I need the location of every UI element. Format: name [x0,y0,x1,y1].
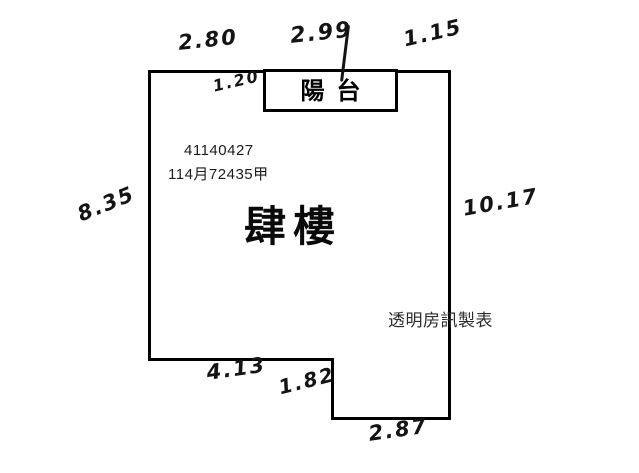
unit-floor-label: 肆樓 [244,204,342,250]
dim-left-side: 8.35 [74,182,138,227]
floor-plan-page: 陽台 41140427 114月72435甲 肆樓 透明房訊製表 2.80 2.… [0,0,639,473]
dim-top-left: 2.80 [177,25,239,55]
reference-code: 114月72435甲 [168,163,269,184]
dim-step: 1.82 [276,362,337,399]
wall-left [148,70,151,361]
balcony-label: 陽台 [289,79,373,103]
balcony-box: 陽台 [263,69,398,112]
wall-right [448,70,451,420]
dim-right-side: 10.17 [461,184,540,221]
dim-top-right: 1.15 [401,15,465,52]
watermark-text: 透明房訊製表 [388,306,493,331]
reference-number: 41140427 [184,142,254,159]
